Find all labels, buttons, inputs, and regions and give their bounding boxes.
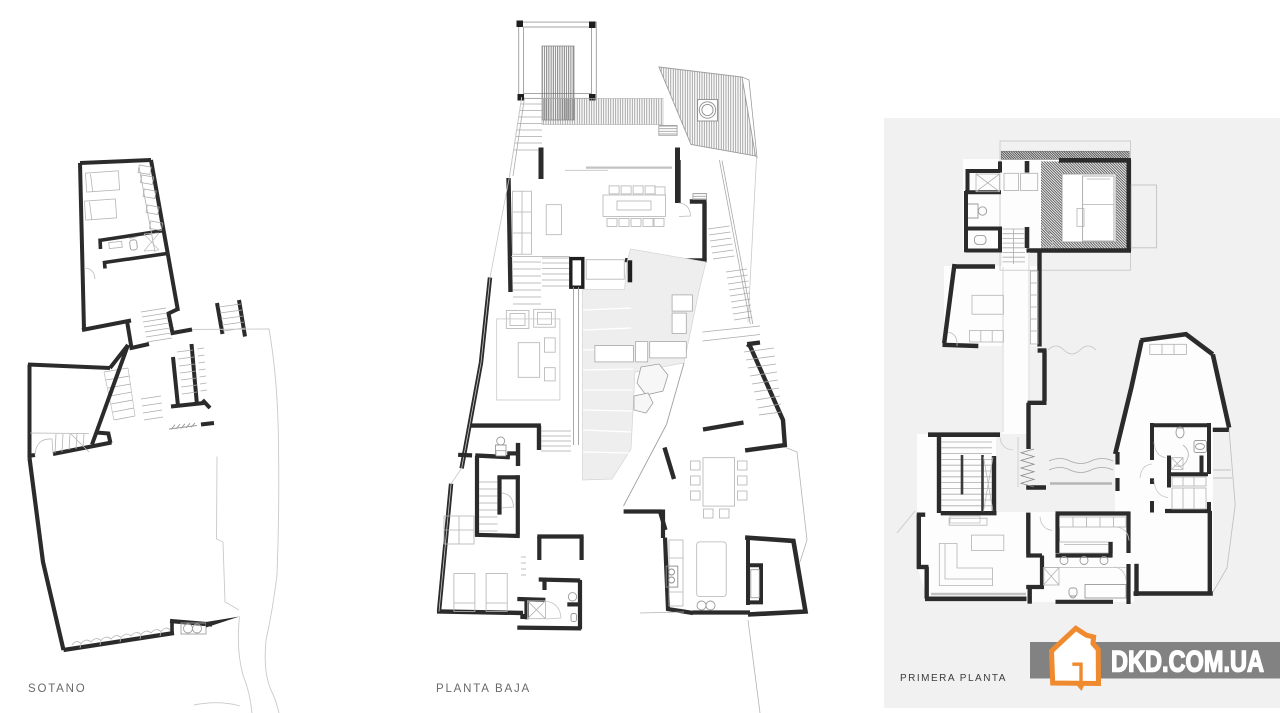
svg-text:SOTANO: SOTANO <box>28 683 87 695</box>
svg-text:PRIMERA PLANTA: PRIMERA PLANTA <box>900 673 1007 684</box>
svg-text:DKD.COM.UA: DKD.COM.UA <box>1111 646 1264 679</box>
svg-text:PLANTA BAJA: PLANTA BAJA <box>436 683 531 695</box>
